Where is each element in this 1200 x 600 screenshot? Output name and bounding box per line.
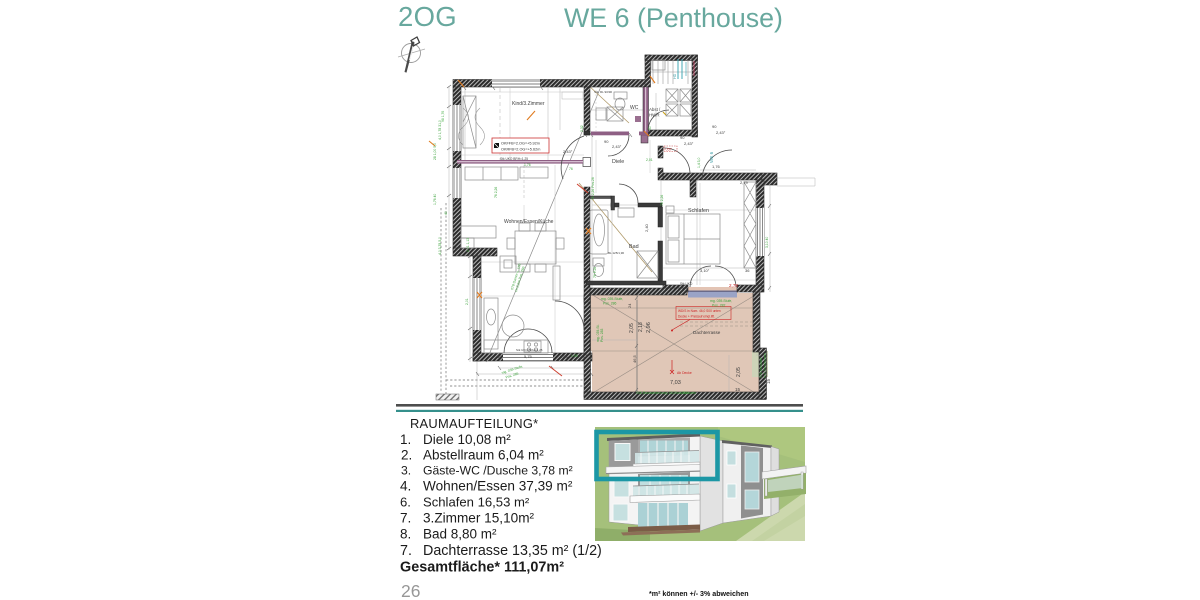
svg-text:2,05: 2,05: [736, 367, 742, 377]
svg-text:28 1,00 5,0: 28 1,00 5,0: [433, 143, 437, 160]
svg-text:36: 36: [745, 268, 750, 273]
svg-text:2OG: 2OG: [398, 1, 457, 32]
svg-text:Gesamtfläche* 111,07m²: Gesamtfläche* 111,07m²: [400, 560, 564, 576]
svg-text:90: 90: [604, 139, 609, 144]
svg-text:mg. 039-Stufe,: mg. 039-Stufe,: [710, 299, 732, 303]
svg-text:2,05: 2,05: [629, 323, 635, 333]
svg-text:2,78: 2,78: [729, 283, 738, 288]
svg-text:Wohnen/Essen 37,39 m²: Wohnen/Essen 37,39 m²: [423, 479, 573, 494]
svg-text:Abstellraum 6,04 m²: Abstellraum 6,04 m²: [423, 448, 544, 463]
svg-text:1,98: 1,98: [571, 354, 578, 358]
svg-text:4,0 3,78 5,0: 4,0 3,78 5,0: [438, 237, 442, 255]
svg-text:Ab Decke: Ab Decke: [677, 371, 692, 375]
svg-text:15/20: 15/20: [680, 391, 689, 395]
svg-text:7.: 7.: [400, 511, 411, 526]
svg-text:1,76: 1,76: [712, 164, 721, 169]
svg-text:Dachterrasse 13,35 m² (1/2): Dachterrasse 13,35 m² (1/2): [423, 543, 602, 559]
svg-text:46,5: 46,5: [632, 354, 637, 363]
svg-text:HD: HD: [673, 73, 677, 79]
svg-text:40: 40: [444, 211, 448, 215]
svg-text:2,96: 2,96: [646, 322, 652, 333]
svg-text:7,03: 7,03: [670, 380, 681, 386]
svg-text:Diele 10,08 m²: Diele 10,08 m²: [423, 432, 511, 447]
svg-text:Dachterrasse: Dachterrasse: [693, 330, 721, 335]
svg-text:Bad: Bad: [629, 244, 639, 250]
svg-text:Pos. 283: Pos. 283: [600, 329, 604, 342]
svg-text:3,10°: 3,10°: [700, 268, 710, 273]
svg-text:Pos. 282: Pos. 282: [712, 304, 725, 308]
svg-text:4.: 4.: [400, 479, 411, 494]
svg-text:2,01 1,13: 2,01 1,13: [466, 238, 470, 252]
svg-text:mg. 039-Stufe,: mg. 039-Stufe,: [601, 297, 623, 301]
svg-text:2,18: 2,18: [638, 322, 644, 332]
svg-text:Stk UKO: Stk UKO: [680, 282, 693, 286]
svg-text:2,43°: 2,43°: [684, 141, 694, 146]
svg-text:1,76 40: 1,76 40: [433, 194, 437, 205]
svg-text:WE 6 (Penthouse): WE 6 (Penthouse): [564, 3, 783, 33]
svg-text:76 2,26: 76 2,26: [660, 195, 664, 206]
svg-text:2,40: 2,40: [644, 223, 649, 232]
svg-text:Schlafen 16,53 m²: Schlafen 16,53 m²: [423, 495, 530, 510]
svg-text:h=1,0m bauseits: h=1,0m bauseits: [763, 353, 767, 378]
svg-text:Schlafen: Schlafen: [688, 208, 709, 214]
svg-text:8.: 8.: [400, 527, 411, 542]
svg-text:OKRFB=2.OG=+5.62m: OKRFB=2.OG=+5.62m: [501, 148, 540, 152]
svg-text:HWR: HWR: [649, 113, 660, 118]
svg-text:90: 90: [680, 135, 685, 140]
svg-text:Abst /: Abst /: [649, 107, 661, 112]
svg-text:Diele: Diele: [612, 159, 624, 165]
svg-text:2,32: 2,32: [580, 125, 584, 132]
svg-text:90: 90: [648, 126, 652, 130]
svg-text:Bad 8,80 m²: Bad 8,80 m²: [423, 527, 497, 542]
svg-text:76: 76: [569, 167, 573, 171]
svg-text:5,75: 5,75: [524, 354, 533, 359]
svg-text:WC: WC: [630, 105, 639, 111]
svg-text:7.: 7.: [400, 543, 412, 559]
svg-text:2,43°: 2,43°: [563, 149, 573, 154]
svg-text:*m² können +/- 3% abweichen: *m² können +/- 3% abweichen: [649, 590, 749, 598]
svg-text:057: 057: [666, 148, 672, 152]
svg-text:26: 26: [401, 581, 420, 600]
svg-text:Decke + Preisauf einql.lift.: Decke + Preisauf einql.lift.: [678, 315, 715, 319]
svg-text:2,01: 2,01: [465, 298, 469, 305]
svg-text:3,10 40: 3,10 40: [765, 237, 769, 248]
svg-text:2.: 2.: [401, 448, 412, 463]
svg-text:1,4 3,0: 1,4 3,0: [697, 158, 701, 168]
svg-text:WE 6: WE 6: [709, 151, 714, 163]
svg-text:80: 80: [497, 354, 502, 359]
svg-text:Wohnen/Essen/Küche: Wohnen/Essen/Küche: [504, 219, 554, 225]
svg-text:Stk UKO BRH=1,25: Stk UKO BRH=1,25: [500, 157, 528, 161]
svg-text:1.: 1.: [400, 432, 411, 447]
svg-text:98 1,76: 98 1,76: [441, 111, 445, 122]
svg-text:2,43°: 2,43°: [612, 144, 622, 149]
svg-text:76 2,26 Pos.26: 76 2,26 Pos.26: [591, 177, 595, 200]
svg-text:4,0 1,78 31,0: 4,0 1,78 31,0: [438, 120, 442, 140]
svg-text:3.: 3.: [401, 464, 411, 478]
svg-text:1,98: 1,98: [560, 354, 569, 359]
svg-text:76 P.26: 76 P.26: [593, 267, 597, 278]
svg-text:15: 15: [735, 387, 741, 392]
svg-text:3.Zimmer 15,10m²: 3.Zimmer 15,10m²: [423, 511, 535, 526]
svg-text:15: 15: [766, 378, 771, 384]
svg-text:76 2,26: 76 2,26: [494, 187, 498, 198]
svg-text:Kind/3.Zimmer: Kind/3.Zimmer: [512, 101, 545, 107]
svg-text:2,43°: 2,43°: [716, 130, 726, 135]
svg-text:RAUMAUFTEILUNG*: RAUMAUFTEILUNG*: [410, 416, 538, 431]
svg-text:24: 24: [627, 303, 632, 308]
svg-text:2,79: 2,79: [740, 180, 749, 185]
svg-text:1,76: 1,76: [524, 163, 531, 167]
svg-text:OKFFB=2.OG=+5.92m: OKFFB=2.OG=+5.92m: [501, 142, 540, 146]
svg-text:Gäste-WC /Dusche 3,78 m²: Gäste-WC /Dusche 3,78 m²: [423, 464, 573, 478]
svg-text:BL 125/1,96: BL 125/1,96: [608, 251, 624, 255]
svg-text:6.: 6.: [400, 495, 411, 510]
svg-text:2,01: 2,01: [646, 158, 653, 162]
svg-text:Stk. RL 90/90: Stk. RL 90/90: [594, 90, 612, 94]
svg-text:WD/S in Num. 46,0 S00 unten: WD/S in Num. 46,0 S00 unten: [678, 309, 721, 313]
svg-text:Stk UKO BRH=1,25: Stk UKO BRH=1,25: [516, 348, 543, 352]
svg-text:Pos. 286: Pos. 286: [603, 302, 616, 306]
svg-text:90: 90: [712, 124, 717, 129]
